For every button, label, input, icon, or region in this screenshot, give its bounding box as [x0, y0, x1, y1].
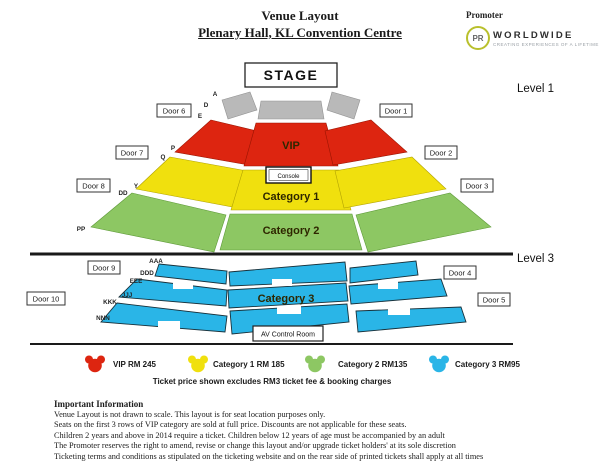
vip-mickey-icon	[85, 356, 105, 373]
cat1-label: Category 1	[263, 191, 320, 203]
vip-label: VIP	[282, 140, 300, 152]
door-9-label: Door 9	[93, 264, 116, 273]
door-9: Door 9	[88, 261, 120, 274]
vip-left-section	[175, 120, 257, 165]
info-line: The Promoter reserves the right to amend…	[54, 441, 584, 451]
front-row-center-section	[258, 101, 324, 119]
important-information-heading: Important Information	[54, 399, 584, 409]
console-label: Console	[277, 174, 300, 180]
seat-notch	[277, 306, 301, 314]
row-label-q: Q	[161, 154, 166, 161]
info-line: Ticketing terms and conditions as stipul…	[54, 452, 584, 462]
row-label-dd: DD	[118, 190, 128, 197]
door-4-label: Door 4	[449, 269, 472, 278]
info-line: Seats on the first 3 rows of VIP categor…	[54, 420, 584, 430]
legend-cat1-label: Category 1 RM 185	[213, 360, 285, 369]
door-10: Door 10	[27, 292, 65, 305]
row-label-p: P	[171, 145, 175, 152]
row-label-nnn: NNN	[96, 315, 110, 322]
av-control-room-label: AV Control Room	[261, 332, 315, 339]
door-7-label: Door 7	[121, 149, 144, 158]
info-line: Children 2 years and above in 2014 requi…	[54, 431, 584, 441]
seat-notch	[388, 307, 410, 315]
row-label-jjj: JJJ	[122, 292, 133, 299]
row-label-e: E	[198, 113, 202, 120]
cat1-mickey-icon	[188, 356, 208, 373]
cat3-right-row1-section	[350, 261, 418, 283]
row-label-a: A	[213, 91, 218, 98]
legend: VIP RM 245 Category 1 RM 185 Category 2 …	[85, 356, 520, 387]
door-3-label: Door 3	[466, 182, 489, 191]
ticket-price-note: Ticket price shown excludes RM3 ticket f…	[153, 377, 392, 386]
seat-notch	[173, 281, 193, 289]
door-8: Door 8	[77, 179, 110, 192]
info-line: Venue Layout is not drawn to scale. This…	[54, 410, 584, 420]
seat-notch	[158, 321, 180, 329]
level1-label: Level 1	[517, 83, 554, 95]
door-5-label: Door 5	[483, 296, 506, 305]
door-3: Door 3	[461, 179, 493, 192]
door-6-label: Door 6	[163, 107, 186, 116]
cat2-label: Category 2	[263, 225, 320, 237]
seat-notch	[272, 279, 292, 286]
front-row-left-section	[222, 92, 257, 119]
legend-cat2-label: Category 2 RM135	[338, 360, 408, 369]
legend-vip-label: VIP RM 245	[113, 360, 157, 369]
seat-notch	[378, 281, 398, 289]
row-label-kkk: KKK	[103, 299, 117, 306]
level3-label: Level 3	[517, 253, 554, 265]
door-8-label: Door 8	[82, 182, 105, 191]
cat2-mickey-icon	[305, 356, 325, 373]
legend-cat3-label: Category 3 RM95	[455, 360, 520, 369]
door-2: Door 2	[425, 146, 457, 159]
door-2-label: Door 2	[430, 149, 453, 158]
cat3-right-row3-section	[356, 307, 466, 332]
row-label-d: D	[204, 102, 209, 109]
important-information: Important Information Venue Layout is no…	[54, 399, 584, 462]
row-label-aaa: AAA	[149, 258, 163, 265]
venue-layout-page: Venue Layout Plenary Hall, KL Convention…	[0, 0, 600, 463]
cat3-label: Category 3	[258, 293, 315, 305]
door-1-label: Door 1	[385, 107, 408, 116]
seat-map: STAGE Level 1 Level 3 VIP Category 1 Cat…	[0, 0, 600, 463]
door-6: Door 6	[157, 104, 191, 117]
door-10-label: Door 10	[33, 295, 60, 304]
cat3-mickey-icon	[429, 356, 449, 373]
door-4: Door 4	[444, 266, 476, 279]
door-5: Door 5	[478, 293, 510, 306]
door-7: Door 7	[116, 146, 148, 159]
stage-label: STAGE	[264, 67, 319, 83]
front-row-right-section	[327, 92, 360, 119]
row-label-ddd: DDD	[140, 270, 154, 277]
row-label-pp: PP	[77, 226, 85, 233]
door-1: Door 1	[380, 104, 412, 117]
vip-right-section	[325, 120, 407, 165]
row-label-eee: EEE	[130, 278, 143, 285]
